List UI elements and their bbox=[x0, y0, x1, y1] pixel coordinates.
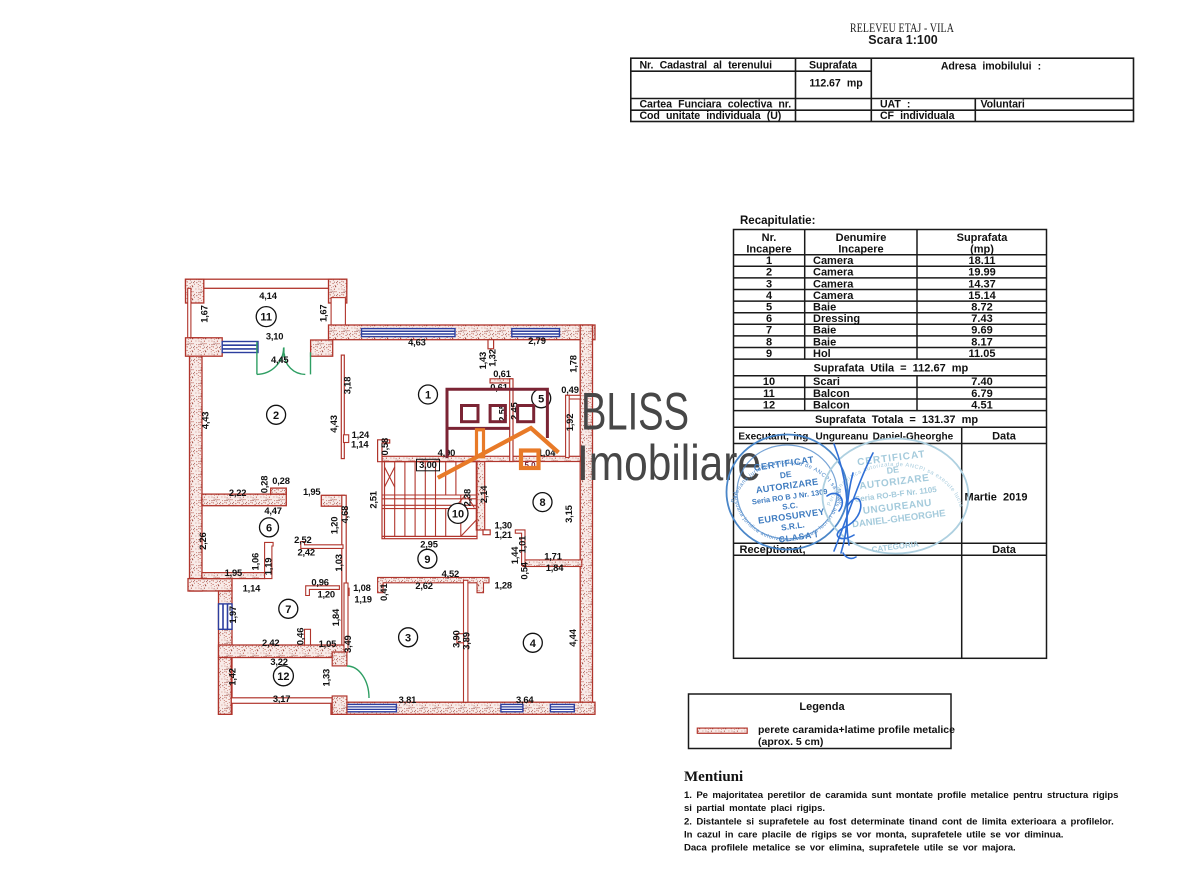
svg-text:1,67: 1,67 bbox=[199, 305, 210, 322]
svg-text:Camera: Camera bbox=[813, 290, 854, 302]
svg-text:3,17: 3,17 bbox=[273, 693, 290, 704]
svg-text:1,05: 1,05 bbox=[319, 638, 336, 649]
svg-text:Balcon: Balcon bbox=[813, 399, 850, 411]
svg-text:Baie: Baie bbox=[813, 302, 836, 314]
svg-text:2,42: 2,42 bbox=[262, 637, 279, 648]
svg-text:0,49: 0,49 bbox=[561, 384, 578, 395]
svg-text:1,06: 1,06 bbox=[250, 553, 261, 570]
svg-text:1,78: 1,78 bbox=[567, 355, 578, 372]
svg-text:3,89: 3,89 bbox=[461, 632, 472, 649]
svg-text:(aprox. 5 cm): (aprox. 5 cm) bbox=[758, 736, 823, 748]
svg-text:4,14: 4,14 bbox=[259, 290, 277, 301]
svg-text:2,26: 2,26 bbox=[197, 532, 208, 549]
svg-text:Incapere: Incapere bbox=[838, 244, 883, 256]
svg-text:14.37: 14.37 bbox=[968, 278, 996, 290]
svg-text:Suprafata: Suprafata bbox=[957, 232, 1009, 244]
svg-text:19.99: 19.99 bbox=[968, 267, 996, 279]
svg-text:4: 4 bbox=[530, 638, 537, 650]
svg-text:12: 12 bbox=[763, 399, 775, 411]
svg-text:Persoana juridica autorizata d: Persoana juridica autorizata de ANCPI sa… bbox=[0, 0, 844, 506]
svg-text:2: 2 bbox=[273, 410, 279, 422]
svg-text:6: 6 bbox=[766, 313, 772, 325]
svg-text:1,97: 1,97 bbox=[227, 606, 238, 623]
svg-text:0,46: 0,46 bbox=[295, 628, 306, 645]
svg-text:si partial montate placi rigip: si partial montate placi rigips. bbox=[684, 803, 825, 814]
svg-text:Hol: Hol bbox=[813, 348, 831, 360]
svg-text:0,96: 0,96 bbox=[311, 577, 328, 588]
svg-text:Incapere: Incapere bbox=[746, 244, 791, 256]
svg-text:Suprafata Totala = 131.37 mp: Suprafata Totala = 131.37 mp bbox=[815, 414, 978, 426]
svg-text:2,62: 2,62 bbox=[415, 580, 432, 591]
svg-text:Receptionat,: Receptionat, bbox=[740, 544, 806, 556]
svg-text:8: 8 bbox=[539, 497, 545, 509]
svg-text:3,49: 3,49 bbox=[342, 635, 353, 652]
svg-text:1,92: 1,92 bbox=[564, 414, 575, 431]
svg-text:4,52: 4,52 bbox=[442, 568, 459, 579]
svg-text:2,79: 2,79 bbox=[528, 335, 545, 346]
svg-text:8.72: 8.72 bbox=[971, 302, 992, 314]
svg-text:11.05: 11.05 bbox=[969, 348, 996, 360]
svg-text:4,44: 4,44 bbox=[567, 628, 578, 646]
svg-text:0,61: 0,61 bbox=[490, 382, 507, 393]
svg-text:0,54: 0,54 bbox=[519, 561, 530, 579]
svg-text:8: 8 bbox=[766, 336, 772, 348]
svg-text:6: 6 bbox=[266, 522, 272, 534]
svg-text:7.40: 7.40 bbox=[971, 376, 992, 388]
svg-text:1. Pe majoritatea peretilor de: 1. Pe majoritatea peretilor de caramida … bbox=[684, 790, 1118, 801]
svg-text:Suprafata Utila = 112.67 mp: Suprafata Utila = 112.67 mp bbox=[814, 363, 969, 375]
svg-text:1,33: 1,33 bbox=[321, 669, 332, 686]
svg-text:Voluntari: Voluntari bbox=[981, 99, 1025, 111]
svg-text:1,28: 1,28 bbox=[494, 579, 511, 590]
svg-text:1,84: 1,84 bbox=[330, 608, 341, 626]
svg-text:3,81: 3,81 bbox=[399, 694, 416, 705]
svg-text:1,14: 1,14 bbox=[243, 583, 261, 594]
svg-text:2,22: 2,22 bbox=[229, 487, 246, 498]
svg-text:Data: Data bbox=[992, 431, 1017, 443]
svg-text:1,71: 1,71 bbox=[544, 551, 561, 562]
svg-text:11: 11 bbox=[763, 388, 775, 400]
svg-text:CF individuala: CF individuala bbox=[880, 110, 955, 122]
svg-text:9.69: 9.69 bbox=[971, 325, 992, 337]
svg-text:0,58: 0,58 bbox=[379, 438, 390, 455]
svg-text:2,38: 2,38 bbox=[461, 489, 472, 506]
svg-text:1,67: 1,67 bbox=[318, 305, 329, 322]
svg-text:Camera: Camera bbox=[813, 267, 854, 279]
svg-text:2,95: 2,95 bbox=[420, 538, 437, 549]
svg-text:8.17: 8.17 bbox=[971, 336, 992, 348]
svg-text:0,61: 0,61 bbox=[493, 368, 510, 379]
svg-text:Scari: Scari bbox=[813, 376, 840, 388]
svg-text:112.67 mp: 112.67 mp bbox=[809, 78, 863, 90]
svg-text:Imobiliare: Imobiliare bbox=[577, 435, 761, 491]
svg-text:Nr. Cadastral al terenului: Nr. Cadastral al terenului bbox=[640, 60, 773, 72]
svg-text:Data: Data bbox=[992, 544, 1017, 556]
svg-text:0,28: 0,28 bbox=[272, 475, 289, 486]
svg-text:1: 1 bbox=[425, 390, 431, 402]
svg-text:1,03: 1,03 bbox=[333, 554, 344, 571]
svg-text:1,95: 1,95 bbox=[303, 486, 320, 497]
svg-text:Scara 1:100: Scara 1:100 bbox=[868, 33, 938, 47]
svg-text:Camera: Camera bbox=[813, 255, 854, 267]
svg-text:9: 9 bbox=[766, 348, 772, 360]
svg-text:4.51: 4.51 bbox=[971, 399, 992, 411]
svg-text:12: 12 bbox=[277, 671, 289, 683]
svg-text:4,43: 4,43 bbox=[200, 412, 211, 429]
svg-text:2,42: 2,42 bbox=[297, 546, 314, 557]
svg-text:7.43: 7.43 bbox=[971, 313, 992, 325]
svg-text:3,10: 3,10 bbox=[266, 330, 283, 341]
svg-text:1,42: 1,42 bbox=[227, 668, 238, 685]
svg-text:Balcon: Balcon bbox=[813, 388, 850, 400]
svg-text:1,19: 1,19 bbox=[354, 593, 371, 604]
svg-text:3: 3 bbox=[766, 278, 772, 290]
svg-text:3: 3 bbox=[405, 632, 411, 644]
svg-text:UAT :: UAT : bbox=[880, 99, 910, 111]
svg-text:Recapitulatie:: Recapitulatie: bbox=[740, 215, 815, 227]
svg-text:1,14: 1,14 bbox=[351, 439, 369, 450]
svg-text:4,47: 4,47 bbox=[264, 505, 281, 516]
svg-text:6.79: 6.79 bbox=[971, 388, 992, 400]
svg-text:2,52: 2,52 bbox=[294, 534, 311, 545]
svg-text:Suprafata: Suprafata bbox=[809, 60, 857, 72]
svg-text:10: 10 bbox=[763, 376, 775, 388]
svg-text:2,14: 2,14 bbox=[478, 485, 489, 503]
svg-text:11: 11 bbox=[260, 312, 272, 324]
svg-text:0,41: 0,41 bbox=[378, 584, 389, 601]
svg-text:4,45: 4,45 bbox=[271, 354, 288, 365]
svg-text:3,18: 3,18 bbox=[342, 377, 353, 394]
svg-text:Camera: Camera bbox=[813, 278, 854, 290]
svg-text:Baie: Baie bbox=[813, 336, 836, 348]
svg-text:4: 4 bbox=[766, 290, 773, 302]
svg-text:4,68: 4,68 bbox=[339, 506, 350, 523]
svg-text:1,95: 1,95 bbox=[225, 567, 242, 578]
svg-text:4,43: 4,43 bbox=[328, 415, 339, 432]
svg-text:7: 7 bbox=[766, 325, 772, 337]
svg-text:1,08: 1,08 bbox=[353, 582, 370, 593]
svg-text:In cazul in care placile de ri: In cazul in care placile de rigips se vo… bbox=[684, 830, 1063, 841]
svg-text:1: 1 bbox=[766, 255, 772, 267]
svg-text:Cartea Funciara colectiva nr.: Cartea Funciara colectiva nr. bbox=[640, 99, 792, 111]
svg-text:1,21: 1,21 bbox=[494, 529, 511, 540]
svg-text:Denumire: Denumire bbox=[836, 232, 887, 244]
svg-text:10: 10 bbox=[452, 508, 464, 520]
svg-text:(mp): (mp) bbox=[970, 244, 994, 256]
svg-text:1,01: 1,01 bbox=[517, 536, 528, 553]
svg-text:Legenda: Legenda bbox=[799, 701, 845, 713]
svg-text:1,32: 1,32 bbox=[487, 349, 498, 366]
svg-text:2,51: 2,51 bbox=[368, 491, 379, 508]
svg-text:18.11: 18.11 bbox=[969, 255, 996, 267]
svg-text:3,00: 3,00 bbox=[419, 459, 436, 470]
svg-text:DE: DE bbox=[779, 469, 792, 481]
svg-text:0,28: 0,28 bbox=[259, 476, 270, 493]
svg-text:4,63: 4,63 bbox=[408, 336, 425, 347]
svg-text:Nr.: Nr. bbox=[762, 232, 777, 244]
svg-text:1,19: 1,19 bbox=[262, 558, 273, 575]
svg-text:perete caramida+latime profile: perete caramida+latime profile metalice bbox=[758, 724, 955, 736]
svg-text:1,20: 1,20 bbox=[317, 589, 334, 600]
svg-text:Cod unitate individuala (U): Cod unitate individuala (U) bbox=[640, 110, 782, 122]
svg-text:BLISS: BLISS bbox=[581, 383, 689, 442]
svg-text:7: 7 bbox=[285, 604, 291, 616]
svg-text:Daca profilele metalice se vor: Daca profilele metalice se vor elimina, … bbox=[684, 843, 1016, 854]
svg-text:2: 2 bbox=[766, 267, 772, 279]
svg-text:5: 5 bbox=[538, 393, 544, 405]
svg-text:15.14: 15.14 bbox=[968, 290, 996, 302]
svg-text:9: 9 bbox=[424, 554, 430, 566]
svg-text:3,64: 3,64 bbox=[516, 694, 534, 705]
svg-text:Martie 2019: Martie 2019 bbox=[965, 492, 1028, 504]
svg-text:Mentiuni: Mentiuni bbox=[684, 769, 743, 785]
svg-text:3,15: 3,15 bbox=[563, 505, 574, 522]
svg-text:5: 5 bbox=[766, 302, 772, 314]
svg-text:Dressing: Dressing bbox=[813, 313, 860, 325]
svg-text:Baie: Baie bbox=[813, 325, 836, 337]
svg-text:1,84: 1,84 bbox=[546, 562, 564, 573]
svg-text:2. Distantele si suprafetele a: 2. Distantele si suprafetele au fost det… bbox=[684, 817, 1114, 828]
svg-text:Adresa imobilului :: Adresa imobilului : bbox=[941, 61, 1041, 73]
